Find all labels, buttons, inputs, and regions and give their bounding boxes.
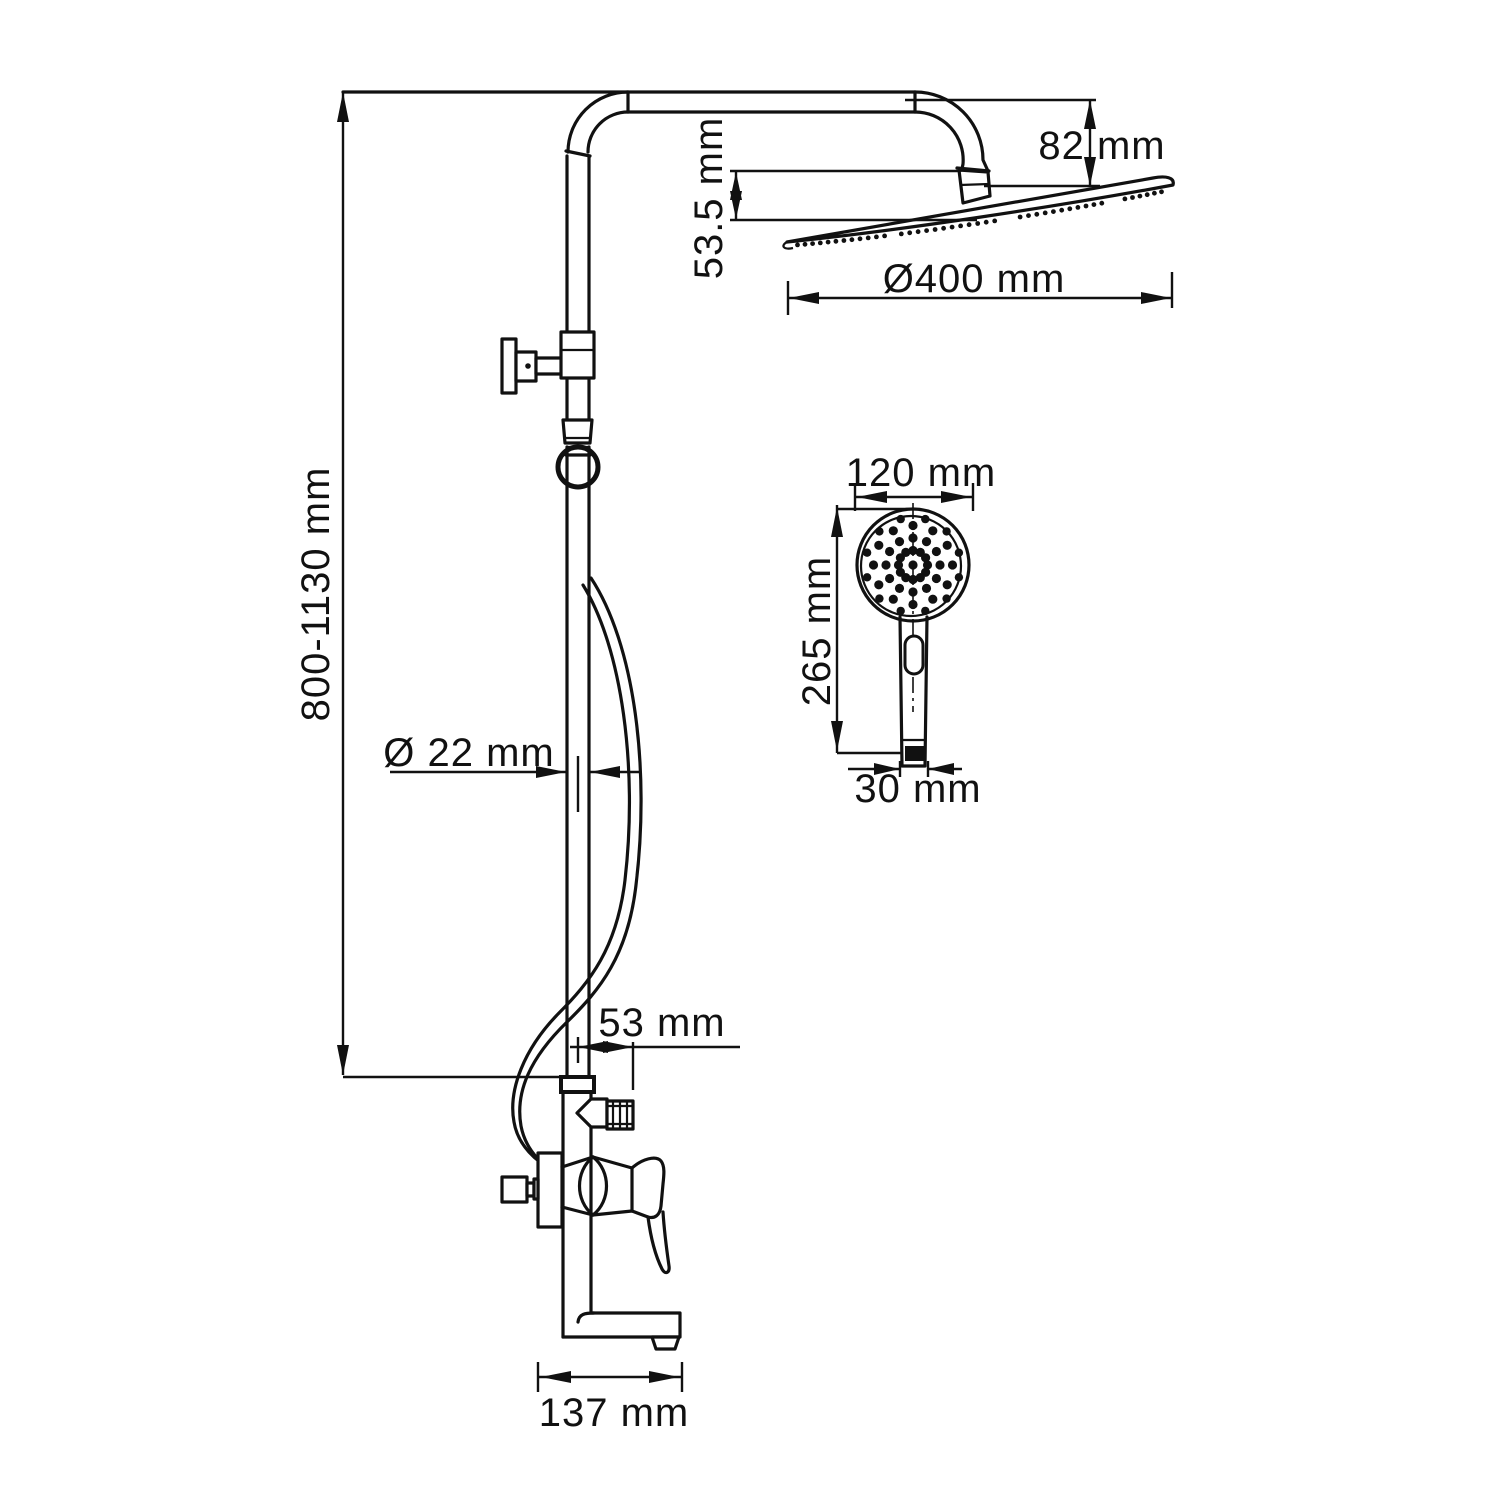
- dim-label-hand-width: 120 mm: [846, 451, 997, 495]
- dim-head-clearance: [730, 171, 977, 220]
- dim-label-outlet-offset: 53 mm: [598, 1001, 725, 1045]
- hose-nut: [607, 1101, 633, 1129]
- dim-label-hand-length: 265 mm: [795, 556, 839, 707]
- dim-spout-reach: [538, 1362, 682, 1392]
- hand-shower-holder-ring: [558, 447, 598, 487]
- mixer-side-knob: [502, 1177, 527, 1202]
- dim-column-height: [337, 92, 561, 1077]
- hand-shower-mode-button: [905, 636, 923, 674]
- mixer-lever-handle: [632, 1158, 669, 1272]
- hand-shower-detail: [857, 503, 969, 766]
- knob-pin: [525, 363, 531, 369]
- dim-label-head-diameter: Ø400 mm: [883, 257, 1066, 301]
- spout-aerator: [652, 1337, 679, 1349]
- dim-label-spout-reach: 137 mm: [539, 1391, 690, 1435]
- mixer-wall-flange: [538, 1153, 562, 1227]
- dim-label-column-height: 800-1130 mm: [294, 467, 338, 722]
- tub-spout: [563, 1313, 680, 1349]
- dim-label-head-clearance: 53.5 mm: [687, 117, 731, 280]
- hose-cone-fitting: [577, 1099, 607, 1127]
- technical-drawing-page: 800-1130 mm 53.5 mm 82 mm Ø400 mm Ø 22 m…: [0, 0, 1500, 1500]
- rain-shower-head: [783, 170, 1173, 249]
- dim-label-arm-drop: 82 mm: [1038, 124, 1165, 168]
- shower-system-dimension-drawing: 800-1130 mm 53.5 mm 82 mm Ø400 mm Ø 22 m…: [0, 0, 1500, 1500]
- pole-coupling: [563, 420, 592, 447]
- bottom-tee-fitting: [561, 1077, 633, 1337]
- dim-label-pipe-diameter: Ø 22 mm: [383, 731, 554, 775]
- hand-shower-inlet-nut: [905, 746, 925, 761]
- dim-label-hand-inlet: 30 mm: [854, 767, 981, 811]
- wall-bracket-diverter: [502, 332, 594, 393]
- mixer-body: [562, 1157, 632, 1215]
